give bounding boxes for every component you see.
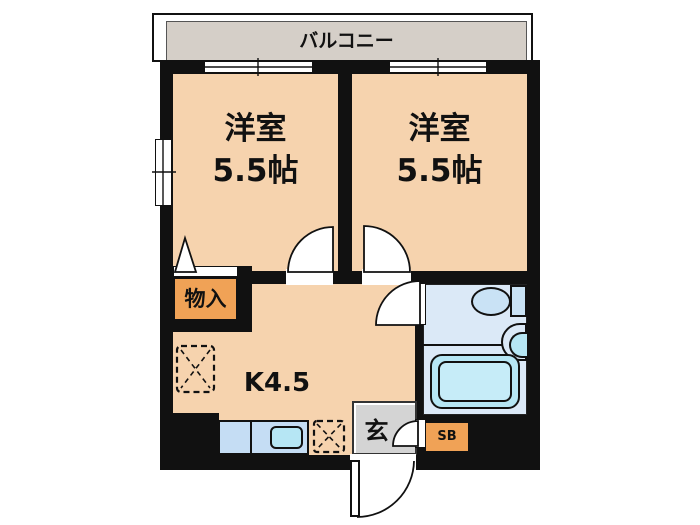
wall-left [160, 60, 173, 470]
shoe-box-label: SB [426, 423, 468, 451]
balcony-label: バルコニー [167, 22, 526, 60]
front-door-leaf [350, 460, 360, 517]
window-side-left [155, 139, 172, 206]
kitchen-counter-divider [250, 420, 252, 455]
toilet-tank [510, 285, 527, 317]
entrance-floor: 玄 [352, 401, 417, 455]
door-gap-room-right [362, 269, 411, 285]
entrance-label: 玄 [354, 411, 399, 446]
window-room-left [204, 61, 313, 73]
floorplan: バルコニー 玄 SB 物入 [0, 0, 700, 525]
storage-label: 物入 [175, 279, 236, 319]
balcony: バルコニー [166, 21, 527, 61]
room-left-label: 洋室 5.5帖 [183, 108, 328, 192]
toilet-bowl [471, 287, 511, 316]
door-gap-room-left [286, 269, 333, 285]
window-room-right [389, 61, 487, 73]
room-right-name: 洋室 [367, 108, 512, 150]
bathtub-inner [438, 361, 512, 402]
kitchen-sink [270, 426, 303, 449]
wall-right [527, 60, 540, 470]
door-gap-bathroom [414, 283, 426, 325]
shoe-box: SB [424, 421, 470, 453]
storage-closet: 物入 [173, 277, 238, 321]
room-right-label: 洋室 5.5帖 [367, 108, 512, 192]
bathroom-divider-wall [423, 344, 505, 346]
room-left-size: 5.5帖 [183, 150, 328, 192]
wall-closet-bottom [160, 321, 252, 332]
block-bottom-left [164, 413, 219, 460]
room-right-size: 5.5帖 [367, 150, 512, 192]
room-left-name: 洋室 [183, 108, 328, 150]
door-gap-entrance-side [415, 419, 426, 448]
kitchen-label: K4.5 [232, 368, 322, 398]
wall-between-rooms [338, 74, 352, 284]
closet-sliding-door [173, 266, 238, 277]
